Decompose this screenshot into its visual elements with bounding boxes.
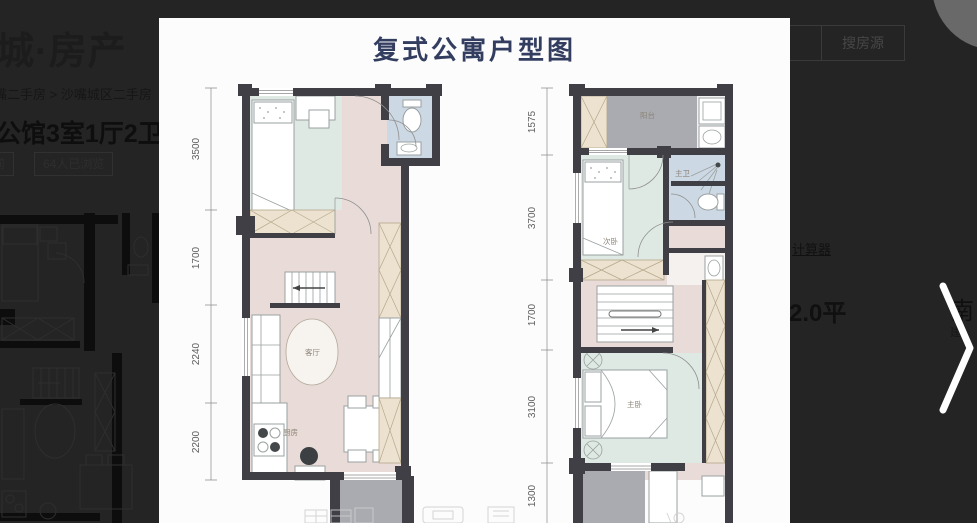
breadcrumb[interactable]: 嘴二手房 > 沙嘴城区二手房 [0, 84, 152, 103]
living-room-label: 客厅 [305, 347, 320, 357]
small-cabinet [702, 476, 724, 496]
floorplan-lightbox: 复式公寓户型图 [159, 18, 790, 523]
wall [270, 303, 340, 308]
next-image-arrow[interactable] [933, 272, 977, 424]
views-tag: 64人已浏览 [34, 152, 113, 176]
balcony-label: 阳台 [640, 110, 655, 120]
dim-1700: 1700 [191, 246, 202, 269]
round-basin [300, 447, 318, 465]
bg-chair [86, 455, 102, 465]
wall [250, 233, 335, 238]
wall [402, 476, 414, 523]
bg-table [80, 465, 132, 509]
side-table [309, 110, 329, 128]
bg-sofa [2, 409, 24, 479]
bg-wall [84, 213, 95, 351]
left-unit: 客厅 厨房 [236, 84, 442, 523]
bg-wall [0, 341, 80, 348]
toilet-tank [403, 100, 421, 107]
area-value: 2.0平 [789, 293, 846, 328]
bedroom2-label: 次卧 [603, 236, 618, 246]
wardrobe [250, 210, 335, 234]
master-bedroom-label: 主卧 [627, 399, 642, 409]
chevron-right-icon[interactable] [943, 286, 970, 410]
floorplan-image: 客厅 厨房 [159, 18, 790, 523]
bg-sink [128, 265, 148, 275]
bg-nightstand [40, 227, 57, 241]
bg-stairs-lines [38, 368, 73, 398]
time-tag: 时前 [0, 152, 14, 176]
wardrobe2 [581, 260, 664, 280]
dim-2240: 2240 [191, 342, 202, 365]
closet-column [379, 223, 401, 463]
sink-room [705, 256, 723, 282]
bg-rug [35, 404, 75, 458]
sofa [252, 315, 280, 405]
dim-1300: 1300 [527, 484, 538, 507]
toilet [403, 108, 421, 132]
closet-column-right [706, 280, 725, 463]
lower-balcony [340, 480, 402, 523]
bg-wall [112, 353, 122, 523]
bg-pillow [3, 227, 37, 244]
stairs-right-unit [597, 286, 673, 342]
search-button[interactable]: 搜房源 [821, 25, 905, 61]
bg-door-arc [56, 253, 84, 283]
bg-toilet [134, 237, 148, 257]
site-logo[interactable]: 城·房产 [0, 20, 127, 75]
pillow [254, 102, 292, 123]
dim-1575: 1575 [527, 110, 538, 133]
stairs-left-unit [285, 272, 335, 305]
master-bath-label: 主卫 [675, 168, 690, 178]
dim-3500: 3500 [191, 137, 202, 160]
bg-burner [6, 495, 14, 503]
bench [649, 471, 677, 523]
bg-desk [48, 243, 66, 259]
right-dimension-chain: 1575 3700 1700 3100 1300 [527, 88, 553, 523]
mortgage-calculator-link[interactable]: 计算器 [792, 239, 831, 258]
kitchen-label: 厨房 [283, 427, 298, 437]
dim-3100: 3100 [527, 395, 538, 418]
right-unit: 阳台 次卧 主卫 [569, 84, 733, 523]
bg-bed [2, 225, 38, 301]
bg-wall [122, 213, 130, 275]
dim-2200: 2200 [191, 430, 202, 453]
bg-burner [15, 504, 23, 512]
dim-1700-right: 1700 [527, 303, 538, 326]
background-floorplan-image [0, 213, 160, 523]
dim-3700: 3700 [527, 206, 538, 229]
bg-wall [0, 215, 118, 224]
listing-title: 公馆3室1厅2卫 [0, 114, 163, 150]
page: { "page": {"background": "#242424"}, "he… [0, 0, 977, 523]
left-dimension-chain: 3500 1700 2240 2200 [191, 88, 217, 480]
lower-balcony-right [583, 471, 645, 523]
lightbox-corner-button[interactable] [932, 0, 977, 50]
